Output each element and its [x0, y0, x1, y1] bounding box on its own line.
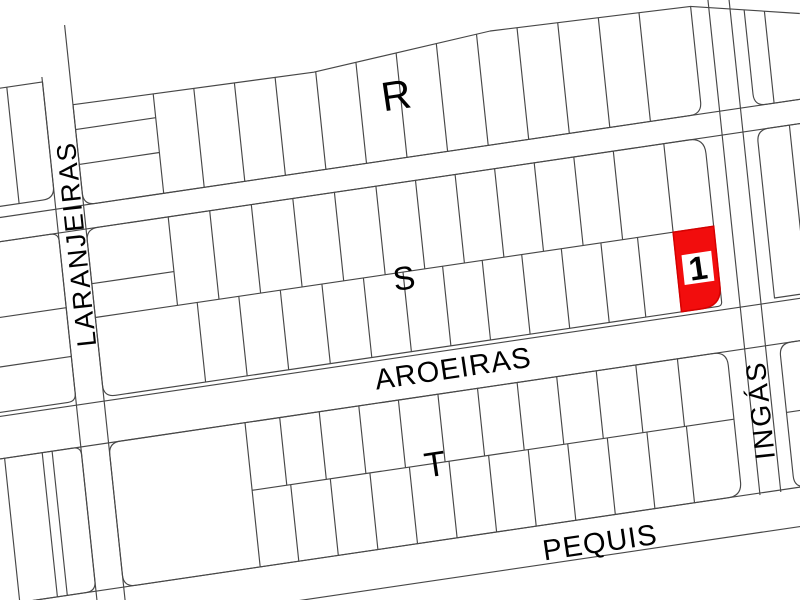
lot-line	[376, 186, 385, 275]
lot-line	[370, 473, 378, 550]
street-label-ingas: INGÁS	[740, 359, 781, 461]
lot-line	[92, 272, 174, 284]
plat-map: R S T LARANJEIRAS AROEIRAS PEQUIS INGÁS …	[0, 0, 800, 600]
lot-line	[764, 11, 774, 103]
block-outline	[758, 118, 800, 299]
lot-line	[280, 418, 287, 486]
lot-line	[561, 249, 569, 329]
lot-line	[489, 455, 497, 532]
lot-line	[574, 157, 583, 246]
block-label-s: S	[390, 258, 417, 298]
lot-line	[636, 365, 643, 433]
lot-line	[677, 359, 684, 427]
lot-line	[239, 296, 247, 376]
lot-line	[251, 205, 260, 294]
lot-line	[495, 169, 504, 258]
lot-line	[517, 28, 529, 140]
lot-line	[5, 458, 20, 600]
lot-line	[557, 377, 564, 445]
map-canvas: R S T LARANJEIRAS AROEIRAS PEQUIS INGÁS …	[0, 0, 800, 600]
lot-line	[482, 260, 490, 340]
lot-line	[455, 175, 464, 264]
lot-line	[528, 450, 536, 527]
lot-line	[686, 426, 694, 503]
lot-line	[322, 284, 330, 364]
block-outline	[0, 448, 95, 600]
lot-line	[293, 199, 302, 288]
lot-line	[517, 383, 524, 451]
lot-line	[416, 180, 425, 269]
lot-line	[647, 432, 655, 509]
lot-line	[79, 153, 159, 165]
lot-line	[601, 243, 609, 323]
lot-line	[638, 238, 646, 318]
lot-line	[478, 388, 485, 456]
lot-line	[280, 290, 288, 370]
lot-line	[0, 308, 66, 324]
lot-line	[607, 438, 615, 515]
lot-line	[534, 163, 543, 252]
lot-line	[316, 72, 326, 170]
lot-line	[568, 444, 576, 521]
lot-line	[359, 406, 366, 474]
lot-line	[477, 34, 489, 145]
lot-line	[664, 144, 673, 233]
lot-line	[52, 451, 67, 595]
lot-line	[443, 266, 451, 346]
lot-line	[613, 151, 622, 240]
lot-line	[153, 94, 164, 193]
block-rear-line	[691, 6, 800, 13]
block-label-t: T	[422, 444, 449, 486]
lot-line	[0, 356, 71, 372]
lot-line	[334, 192, 343, 281]
lot-line	[76, 118, 156, 130]
lot-line	[436, 44, 447, 152]
lot-line	[210, 211, 219, 299]
lot-line	[409, 467, 417, 543]
lot-line	[330, 479, 338, 556]
lot-line	[245, 423, 260, 567]
lot-line	[398, 400, 405, 468]
lot-line	[194, 88, 204, 187]
lot-line	[522, 255, 530, 335]
lot-line	[275, 77, 285, 175]
street-label-laranjeiras: LARANJEIRAS	[51, 140, 102, 349]
lot-line	[363, 278, 371, 358]
map-labels: R S T LARANJEIRAS AROEIRAS PEQUIS INGÁS …	[51, 70, 781, 567]
lot-line	[639, 13, 650, 122]
street-label-pequis: PEQUIS	[541, 519, 660, 568]
lot-line	[787, 400, 800, 412]
block-outline	[744, 10, 800, 105]
lot-line	[197, 303, 205, 383]
lot-line	[234, 83, 244, 181]
lot-line	[558, 23, 570, 134]
lot-line	[291, 485, 299, 562]
block-label-r: R	[378, 70, 414, 120]
lot-line	[319, 412, 326, 480]
lot-line	[7, 87, 19, 203]
lot-line	[598, 18, 610, 128]
lot-line	[789, 125, 800, 293]
lot-line	[42, 453, 57, 597]
lot-line	[252, 419, 734, 490]
block-outline	[780, 331, 800, 486]
lot-line	[596, 371, 603, 439]
lot-line	[449, 461, 457, 538]
lot-line	[168, 217, 177, 306]
lot-line	[356, 62, 367, 163]
